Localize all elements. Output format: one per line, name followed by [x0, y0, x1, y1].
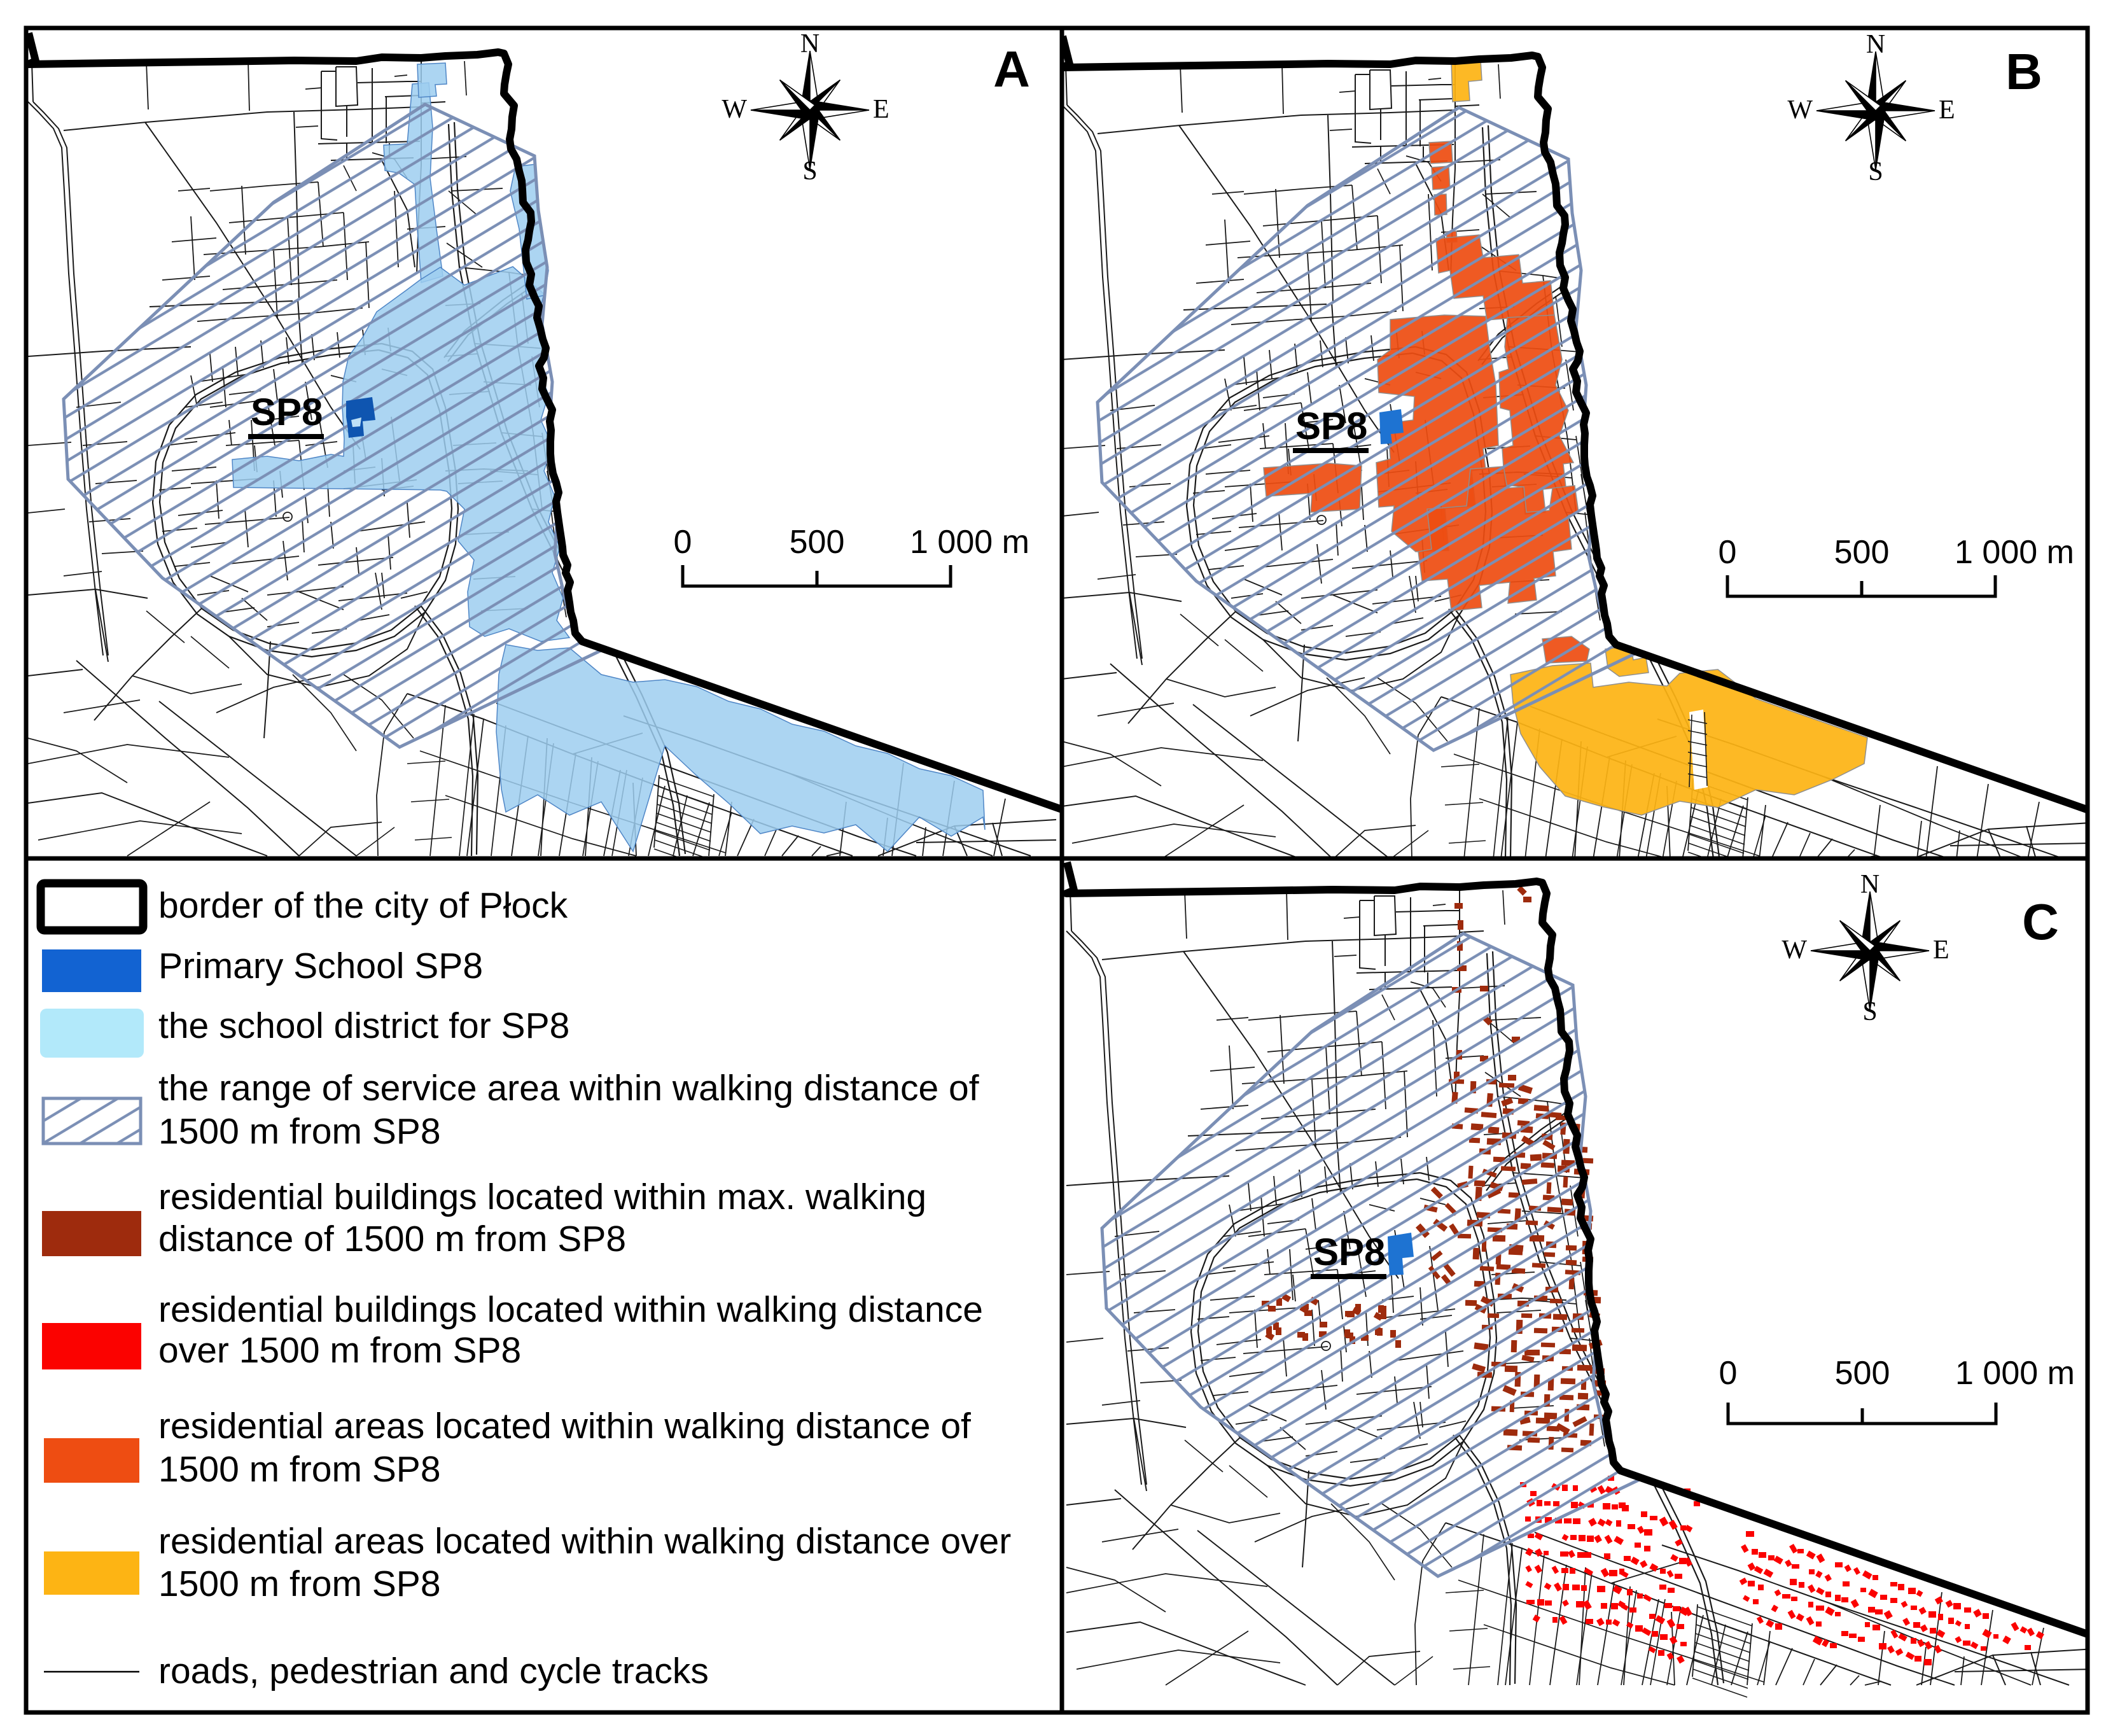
svg-text:N: N: [1860, 870, 1879, 899]
svg-text:residential areas located with: residential areas located within walking…: [158, 1521, 1011, 1562]
svg-text:A: A: [993, 41, 1030, 97]
svg-text:E: E: [873, 95, 889, 124]
svg-text:the school district for SP8: the school district for SP8: [158, 1005, 569, 1046]
svg-text:W: W: [1787, 95, 1813, 125]
svg-text:Primary School SP8: Primary School SP8: [158, 946, 483, 986]
svg-text:S: S: [1862, 997, 1877, 1026]
svg-text:border of the city of Płock: border of the city of Płock: [158, 885, 568, 926]
svg-text:0: 0: [674, 524, 692, 561]
svg-text:500: 500: [1835, 1355, 1890, 1392]
svg-text:roads, pedestrian and cycle tr: roads, pedestrian and cycle tracks: [158, 1651, 709, 1691]
svg-text:S: S: [1868, 157, 1883, 186]
svg-text:N: N: [1866, 30, 1885, 59]
svg-text:S: S: [802, 157, 817, 186]
svg-text:E: E: [1933, 935, 1949, 965]
svg-text:SP8: SP8: [1295, 405, 1367, 447]
svg-text:1 000 m: 1 000 m: [1955, 534, 2074, 571]
svg-text:SP8: SP8: [1313, 1231, 1385, 1273]
svg-text:over 1500 m from SP8: over 1500 m from SP8: [158, 1330, 521, 1371]
svg-text:residential buildings located: residential buildings located within max…: [158, 1177, 926, 1217]
svg-text:1500 m from SP8: 1500 m from SP8: [158, 1111, 441, 1152]
svg-text:500: 500: [1834, 534, 1890, 571]
svg-text:N: N: [800, 29, 819, 59]
svg-text:1 000 m: 1 000 m: [910, 524, 1029, 561]
svg-text:W: W: [1782, 935, 1807, 965]
svg-text:distance of 1500 m from SP8: distance of 1500 m from SP8: [158, 1219, 626, 1259]
svg-text:W: W: [722, 95, 747, 124]
svg-text:E: E: [1939, 95, 1955, 125]
svg-text:0: 0: [1719, 1355, 1738, 1392]
svg-text:B: B: [2005, 43, 2042, 100]
svg-text:500: 500: [790, 524, 845, 561]
svg-text:the range of service area with: the range of service area within walking…: [158, 1068, 979, 1109]
svg-text:SP8: SP8: [251, 391, 323, 433]
svg-text:1500 m from SP8: 1500 m from SP8: [158, 1564, 441, 1604]
svg-text:1500 m from SP8: 1500 m from SP8: [158, 1449, 441, 1490]
svg-text:residential buildings located: residential buildings located within wal…: [158, 1289, 983, 1330]
svg-text:residential areas located with: residential areas located within walking…: [158, 1406, 971, 1446]
svg-text:1 000 m: 1 000 m: [1955, 1355, 2075, 1392]
svg-text:C: C: [2022, 893, 2059, 950]
svg-text:0: 0: [1719, 534, 1737, 571]
